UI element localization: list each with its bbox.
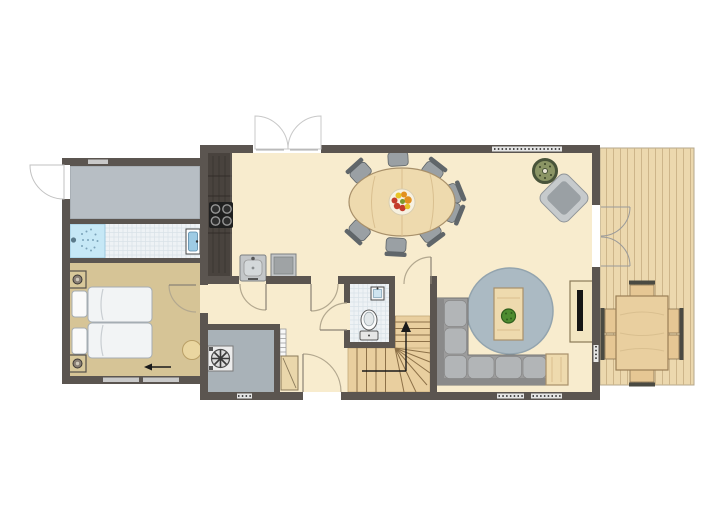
entry-door (30, 165, 64, 199)
washing-machine (208, 346, 233, 371)
table-plant (502, 309, 516, 323)
nightstand (69, 271, 86, 288)
coffee-table (494, 288, 523, 340)
pouf (183, 341, 202, 360)
toilet (360, 310, 378, 340)
left-wing (69, 166, 202, 376)
deck-door-opening (592, 205, 600, 267)
shower (70, 224, 105, 258)
side-table (546, 354, 568, 385)
stove (209, 202, 233, 228)
wc-sink (371, 287, 384, 300)
pillow (72, 291, 87, 317)
fruit-bowl (389, 189, 415, 215)
deck-chair (601, 308, 618, 334)
utility-room (208, 329, 298, 392)
deck-table (616, 296, 668, 370)
nightstand (69, 355, 86, 372)
dining-chair (384, 237, 407, 257)
entry-room-floor (70, 166, 200, 219)
deck-chair (667, 334, 684, 360)
floorplan-image (0, 0, 713, 519)
deck-chair (629, 370, 655, 387)
floorplan-stage (0, 0, 713, 519)
deck-chair (667, 308, 684, 334)
top-double-door-right (288, 116, 321, 149)
cupboard (281, 356, 298, 390)
door-opening-bottom (303, 392, 341, 400)
storage-shelf (280, 329, 286, 356)
bathroom-sink (186, 229, 200, 254)
tv-sideboard (570, 281, 593, 342)
deck-chair (629, 281, 655, 298)
potted-plant (534, 160, 557, 183)
deck-chair (601, 334, 618, 360)
wc-room (350, 284, 389, 342)
top-double-door-left (255, 116, 288, 149)
kitchen-sink (240, 255, 266, 281)
pillow (72, 328, 87, 354)
tv (577, 290, 583, 331)
